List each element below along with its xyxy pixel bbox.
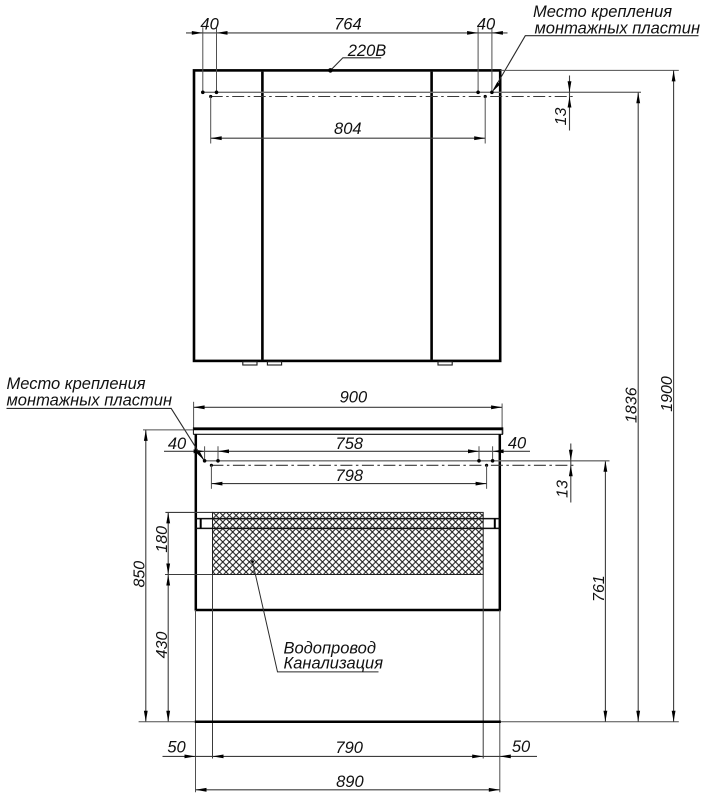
svg-text:Место крепления: Место крепления [7,375,146,393]
svg-text:1900: 1900 [659,376,676,412]
svg-text:40: 40 [508,434,527,452]
svg-text:764: 764 [334,16,362,34]
svg-text:804: 804 [334,120,362,138]
svg-text:50: 50 [512,738,531,756]
svg-text:890: 890 [336,773,364,791]
svg-text:40: 40 [200,15,219,33]
svg-text:900: 900 [340,389,368,407]
svg-text:Место крепления: Место крепления [533,3,672,21]
svg-text:220В: 220В [347,42,387,60]
svg-text:790: 790 [335,739,363,757]
svg-text:13: 13 [554,480,571,498]
svg-text:180: 180 [154,526,171,553]
svg-text:монтажных пластин: монтажных пластин [535,19,701,37]
svg-text:13: 13 [553,108,570,126]
svg-text:1836: 1836 [624,387,641,423]
svg-text:Канализация: Канализация [284,654,384,672]
svg-text:761: 761 [591,575,608,602]
svg-text:50: 50 [167,739,186,757]
svg-text:758: 758 [336,435,364,453]
svg-text:430: 430 [154,632,171,659]
svg-text:40: 40 [168,435,187,453]
svg-text:монтажных пластин: монтажных пластин [7,392,173,410]
svg-text:40: 40 [477,15,496,33]
svg-text:798: 798 [336,467,364,485]
svg-text:850: 850 [132,561,149,588]
